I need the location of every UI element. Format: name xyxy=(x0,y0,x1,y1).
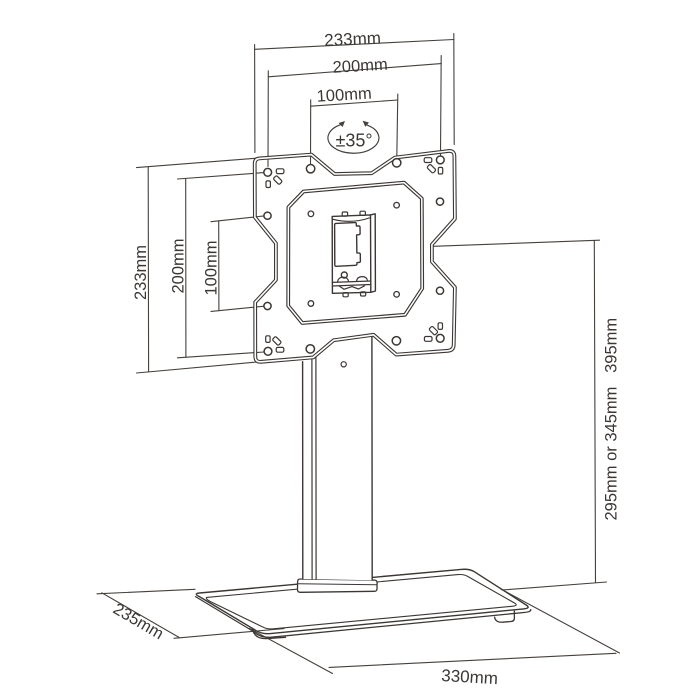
svg-text:100mm: 100mm xyxy=(316,85,372,106)
svg-text:233mm: 233mm xyxy=(132,245,150,300)
svg-text:235mm: 235mm xyxy=(110,600,167,643)
svg-text:233mm: 233mm xyxy=(324,28,381,50)
svg-text:200mm: 200mm xyxy=(332,56,388,77)
svg-text:100mm: 100mm xyxy=(203,240,221,295)
svg-text:330mm: 330mm xyxy=(441,666,499,688)
svg-text:200mm: 200mm xyxy=(170,238,188,293)
svg-text:295mm or 345mm 395mm: 295mm or 345mm 395mm xyxy=(603,318,621,521)
svg-text:±35°: ±35° xyxy=(336,131,373,151)
